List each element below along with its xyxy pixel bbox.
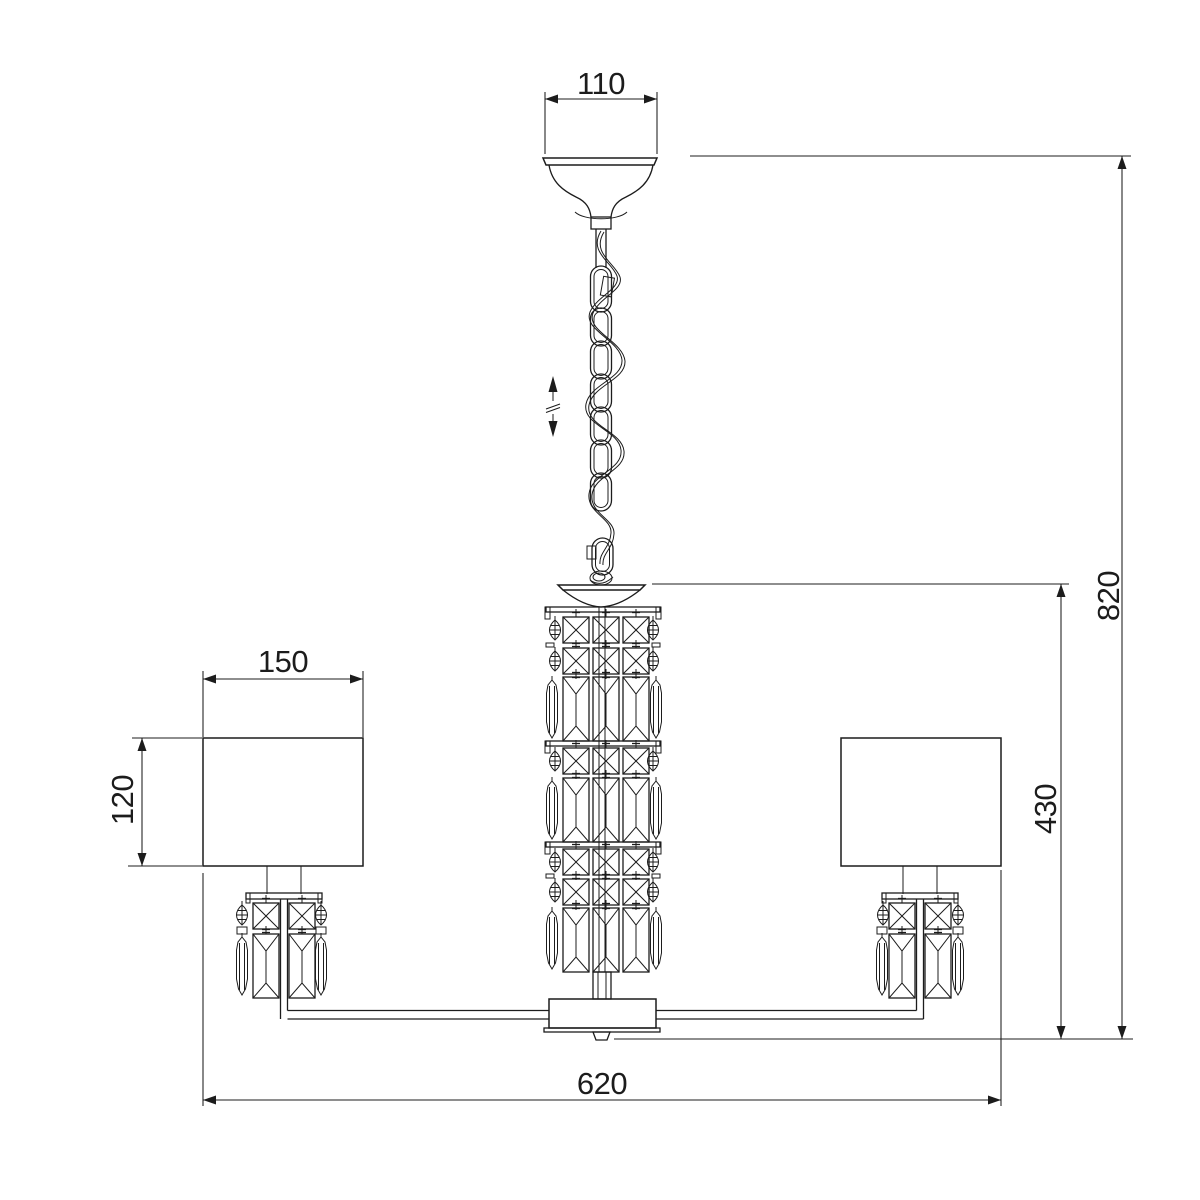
right-lampshade (841, 738, 1001, 866)
body-top-plate (558, 585, 645, 607)
central-hub (544, 999, 660, 1040)
height-adjust-icon (546, 376, 560, 437)
dim-overall-height: 820 (614, 156, 1133, 1039)
crystal-column (545, 607, 662, 972)
dim-shade-height: 120 (105, 738, 202, 866)
dim-shade-width-label: 150 (258, 644, 308, 679)
dim-canopy-width-label: 110 (577, 66, 625, 101)
column-stem (593, 972, 611, 999)
dim-body-height: 430 (652, 584, 1069, 1039)
dim-body-height-label: 430 (1028, 784, 1063, 834)
dim-shade-height-label: 120 (105, 775, 140, 825)
dim-shade-width: 150 (203, 644, 363, 737)
left-pendant-assembly (237, 866, 327, 998)
technical-drawing-sheet: 110 150 120 620 430 (0, 0, 1200, 1200)
dim-overall-width-label: 620 (577, 1066, 627, 1101)
left-lampshade (203, 738, 363, 866)
chandelier-dimension-drawing: 110 150 120 620 430 (0, 0, 1200, 1200)
dim-overall-height-label: 820 (1091, 571, 1126, 621)
dim-canopy-width: 110 (545, 66, 657, 154)
ceiling-canopy (543, 158, 657, 229)
right-pendant-assembly (877, 866, 964, 998)
